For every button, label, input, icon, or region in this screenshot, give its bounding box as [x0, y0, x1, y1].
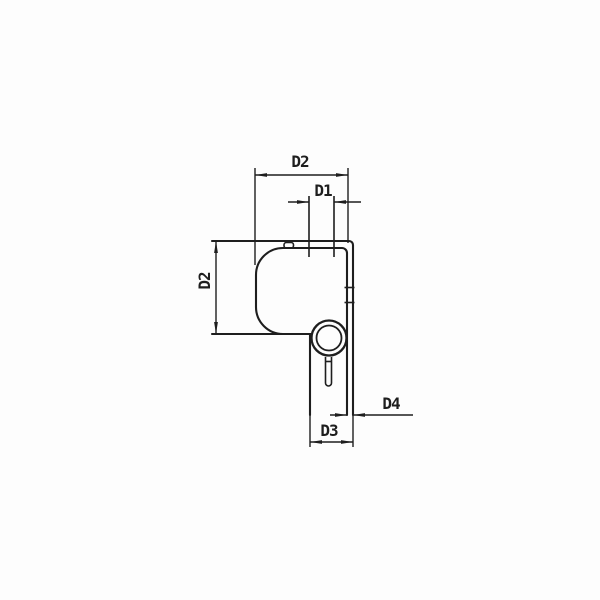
- dimension-label-d2-top: D2: [291, 152, 309, 171]
- body-rounded-contour: [256, 248, 283, 334]
- technical-drawing: D2 D1 D2 D4: [0, 0, 600, 600]
- dimension-label-d4: D4: [382, 394, 400, 413]
- dimension-label-d2-left: D2: [195, 272, 214, 290]
- arrowhead-right: [336, 173, 348, 177]
- arrowhead-top: [214, 241, 218, 253]
- top-edge-and-outer-bar: [212, 241, 353, 415]
- dimension-d3-stem-width: D3: [310, 415, 353, 447]
- keyhole-slot: [326, 357, 332, 386]
- arrowhead-left: [310, 440, 322, 444]
- arrowhead-right: [353, 413, 365, 417]
- arrowhead-left: [297, 200, 309, 204]
- inner-top-line-and-inner-bar: [283, 248, 347, 415]
- drawing-canvas: D2 D1 D2 D4: [0, 0, 600, 600]
- dimension-d1-hole: D1: [288, 181, 361, 204]
- ring-inner-circle: [317, 326, 342, 351]
- dimension-label-d3: D3: [320, 421, 338, 440]
- arrowhead-bottom: [214, 322, 218, 334]
- arrowhead-left: [335, 413, 347, 417]
- arrowhead-right: [334, 200, 346, 204]
- arrowhead-left: [255, 173, 267, 177]
- dimension-d2-height: D2: [195, 241, 218, 334]
- arrowhead-right: [341, 440, 353, 444]
- part-outline: [212, 196, 355, 415]
- dimension-label-d1: D1: [314, 181, 332, 200]
- dimension-d4-thickness: D4: [330, 394, 413, 447]
- pivot-ring: [312, 321, 347, 356]
